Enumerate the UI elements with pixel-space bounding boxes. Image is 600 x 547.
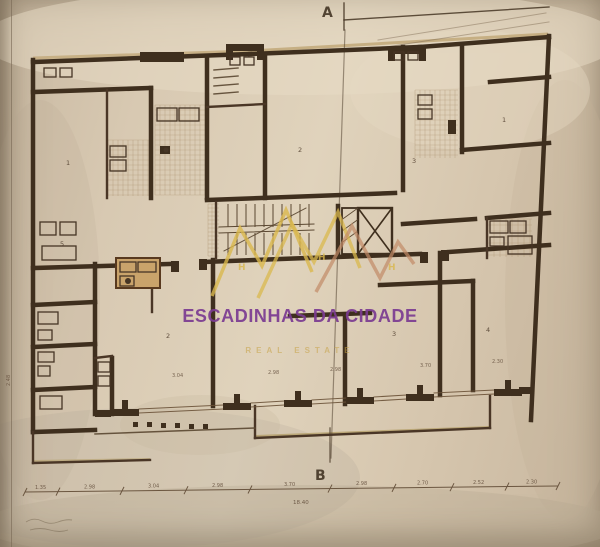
- svg-text:2: 2: [166, 332, 170, 340]
- svg-text:3.70: 3.70: [284, 482, 295, 488]
- svg-text:2.98: 2.98: [268, 370, 279, 376]
- svg-text:1: 1: [66, 159, 70, 167]
- section-label-b: B: [315, 468, 326, 484]
- svg-text:2.98: 2.98: [212, 483, 223, 489]
- svg-text:18.40: 18.40: [293, 500, 309, 506]
- svg-text:2.52: 2.52: [473, 480, 484, 486]
- svg-text:2.98: 2.98: [330, 367, 341, 373]
- scanned-floor-plan: 123123453.042.982.983.702.302.481.352.98…: [0, 0, 600, 547]
- svg-text:H: H: [388, 263, 396, 273]
- section-label-a: A: [322, 5, 333, 21]
- svg-text:3.04: 3.04: [172, 373, 183, 379]
- svg-text:H: H: [238, 263, 246, 273]
- floor-plan-drawing: 123123453.042.982.983.702.302.481.352.98…: [0, 0, 600, 547]
- svg-text:2.30: 2.30: [526, 479, 537, 485]
- watermark-subtitle: REAL ESTATE: [245, 346, 354, 355]
- svg-text:4: 4: [486, 326, 490, 334]
- svg-text:2.98: 2.98: [356, 481, 367, 487]
- watermark-title: ESCADINHAS DA CIDADE: [182, 306, 417, 327]
- svg-text:2: 2: [298, 146, 302, 154]
- svg-text:H: H: [318, 253, 326, 263]
- svg-text:2.98: 2.98: [84, 484, 95, 490]
- svg-text:3.70: 3.70: [420, 363, 431, 369]
- svg-text:3: 3: [392, 330, 396, 338]
- svg-text:3.04: 3.04: [148, 484, 159, 490]
- svg-text:2.30: 2.30: [492, 359, 503, 365]
- paper-edge-shadow: [0, 0, 12, 547]
- svg-text:2.70: 2.70: [417, 481, 428, 487]
- svg-text:3: 3: [412, 157, 416, 165]
- svg-text:5: 5: [60, 240, 64, 248]
- svg-text:1.35: 1.35: [35, 485, 46, 491]
- svg-text:1: 1: [502, 116, 506, 124]
